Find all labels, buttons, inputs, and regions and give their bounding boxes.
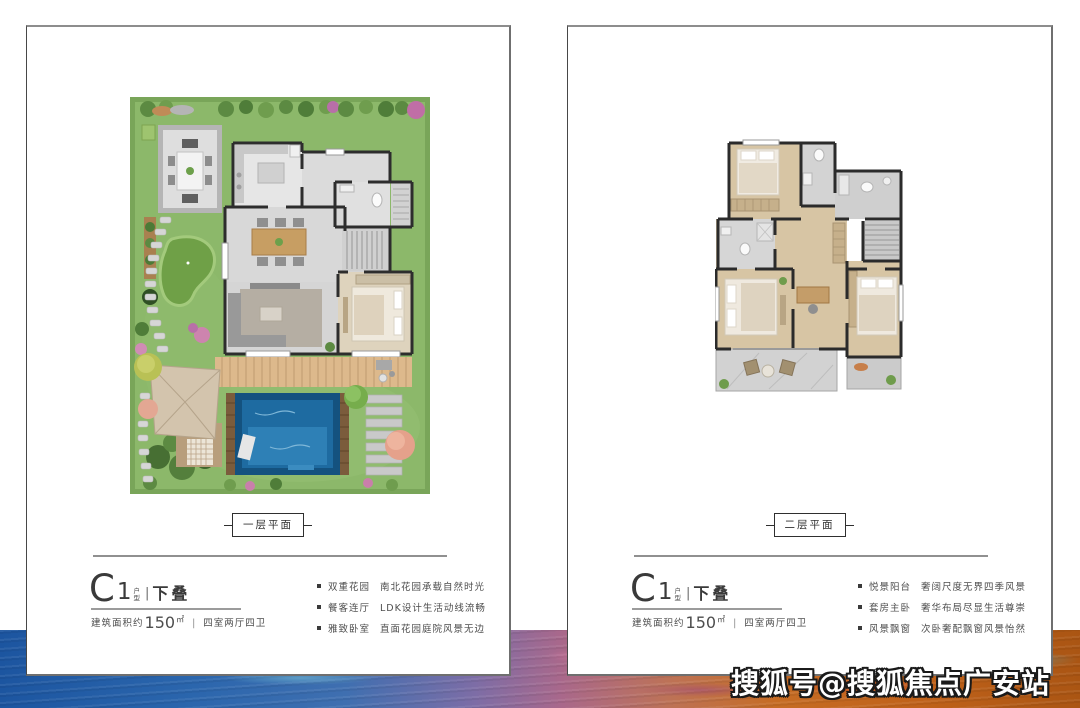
feature-desc: 次卧奢配飘窗风景怡然 (921, 621, 1026, 635)
area-text: 建筑面积约 150 ㎡ | 四室两厅四卫 (91, 614, 266, 629)
type-suffix: 下叠 (152, 584, 190, 603)
bullet-icon (858, 605, 862, 609)
bullet-icon (317, 605, 321, 609)
feature-desc: LDK设计生活动线流畅 (380, 600, 486, 614)
second-floor-plan-svg (715, 139, 910, 394)
feature-desc: 直面花园庭院风景无边 (380, 621, 485, 635)
area-value: 150 (145, 616, 176, 629)
area-divider: | (733, 618, 737, 629)
feature-list: 双重花园 南北花园承载自然时光 餐客连厅 LDK设计生活动线流畅 雅致卧室 直面… (317, 575, 486, 638)
type-small-label: 户 型 (674, 588, 681, 602)
plan-label-text: 一层平面 (232, 513, 304, 537)
feature-item: 悦景阳台 奢阔尺度无界四季风景 (858, 575, 1026, 596)
room-layout-text: 四室两厅四卫 (203, 615, 266, 629)
feature-item: 餐客连厅 LDK设计生活动线流畅 (317, 596, 486, 617)
second-floor-plan-image (715, 139, 910, 398)
feature-item: 套房主卧 奢华布局尽显生活尊崇 (858, 596, 1026, 617)
bullet-icon (317, 584, 321, 588)
dining-furniture (252, 218, 306, 266)
watermark-text: 搜狐号@搜狐焦点广安站 (731, 662, 1050, 702)
floorplan-card-second-floor: 二层平面 C 1 户 型 | 下叠 建筑面积约 150 ㎡ | 四室两厅四卫 悦… (567, 25, 1053, 676)
divider-line (634, 555, 988, 557)
type-letter: C (630, 574, 656, 604)
bedroom2-furniture (849, 271, 897, 335)
feature-item: 双重花园 南北花园承载自然时光 (317, 575, 486, 596)
first-floor-plan-image (130, 97, 430, 498)
type-divider: | (686, 585, 690, 602)
divider-line (93, 555, 447, 557)
type-divider: | (145, 585, 149, 602)
type-small-bottom: 型 (133, 595, 140, 602)
floorplan-card-first-floor: 一层平面 C 1 户 型 | 下叠 建筑面积约 150 ㎡ | 四室两厅四卫 双… (26, 25, 511, 676)
plan-label-box: 一层平面 (224, 513, 312, 537)
area-unit: ㎡ (176, 614, 185, 625)
area-prefix: 建筑面积约 (91, 615, 144, 629)
living-furniture (228, 283, 335, 352)
feature-title: 餐客连厅 (328, 600, 370, 614)
terrace (847, 357, 901, 389)
feature-item: 雅致卧室 直面花园庭院风景无边 (317, 617, 486, 638)
area-text: 建筑面积约 150 ㎡ | 四室两厅四卫 (632, 614, 807, 629)
type-letter: C (89, 574, 115, 604)
unit-type-title: C 1 户 型 | 下叠 (630, 574, 731, 604)
type-number: 1 (117, 580, 132, 604)
deck (215, 357, 412, 387)
feature-title: 套房主卧 (869, 600, 911, 614)
plan-label-text: 二层平面 (774, 513, 846, 537)
master-bedroom-furniture (725, 279, 786, 335)
area-divider: | (192, 618, 196, 629)
feature-title: 雅致卧室 (328, 621, 370, 635)
feature-list: 悦景阳台 奢阔尺度无界四季风景 套房主卧 奢华布局尽显生活尊崇 风景飘窗 次卧奢… (858, 575, 1026, 638)
type-small-label: 户 型 (133, 588, 140, 602)
stairs (342, 229, 388, 271)
plan-label-box: 二层平面 (766, 513, 854, 537)
title-underline (632, 608, 782, 610)
label-tick-right (845, 525, 854, 526)
room-layout-text: 四室两厅四卫 (744, 615, 807, 629)
first-floor-plan-svg (130, 97, 430, 494)
feature-item: 风景飘窗 次卧奢配飘窗风景怡然 (858, 617, 1026, 638)
feature-desc: 南北花园承载自然时光 (380, 579, 485, 593)
feature-title: 悦景阳台 (869, 579, 911, 593)
area-value: 150 (686, 616, 717, 629)
area-unit: ㎡ (717, 614, 726, 625)
pool (226, 393, 349, 475)
balcony (716, 349, 837, 391)
area-prefix: 建筑面积约 (632, 615, 685, 629)
bedroom1-furniture (731, 149, 779, 211)
stairs (865, 225, 899, 255)
bullet-icon (858, 626, 862, 630)
label-tick-right (303, 525, 312, 526)
feature-title: 双重花园 (328, 579, 370, 593)
bullet-icon (317, 626, 321, 630)
bullet-icon (858, 584, 862, 588)
type-small-bottom: 型 (674, 595, 681, 602)
title-underline (91, 608, 241, 610)
feature-title: 风景飘窗 (869, 621, 911, 635)
feature-desc: 奢阔尺度无界四季风景 (921, 579, 1026, 593)
type-suffix: 下叠 (693, 584, 731, 603)
feature-desc: 奢华布局尽显生活尊崇 (921, 600, 1026, 614)
type-number: 1 (658, 580, 673, 604)
unit-type-title: C 1 户 型 | 下叠 (89, 574, 190, 604)
